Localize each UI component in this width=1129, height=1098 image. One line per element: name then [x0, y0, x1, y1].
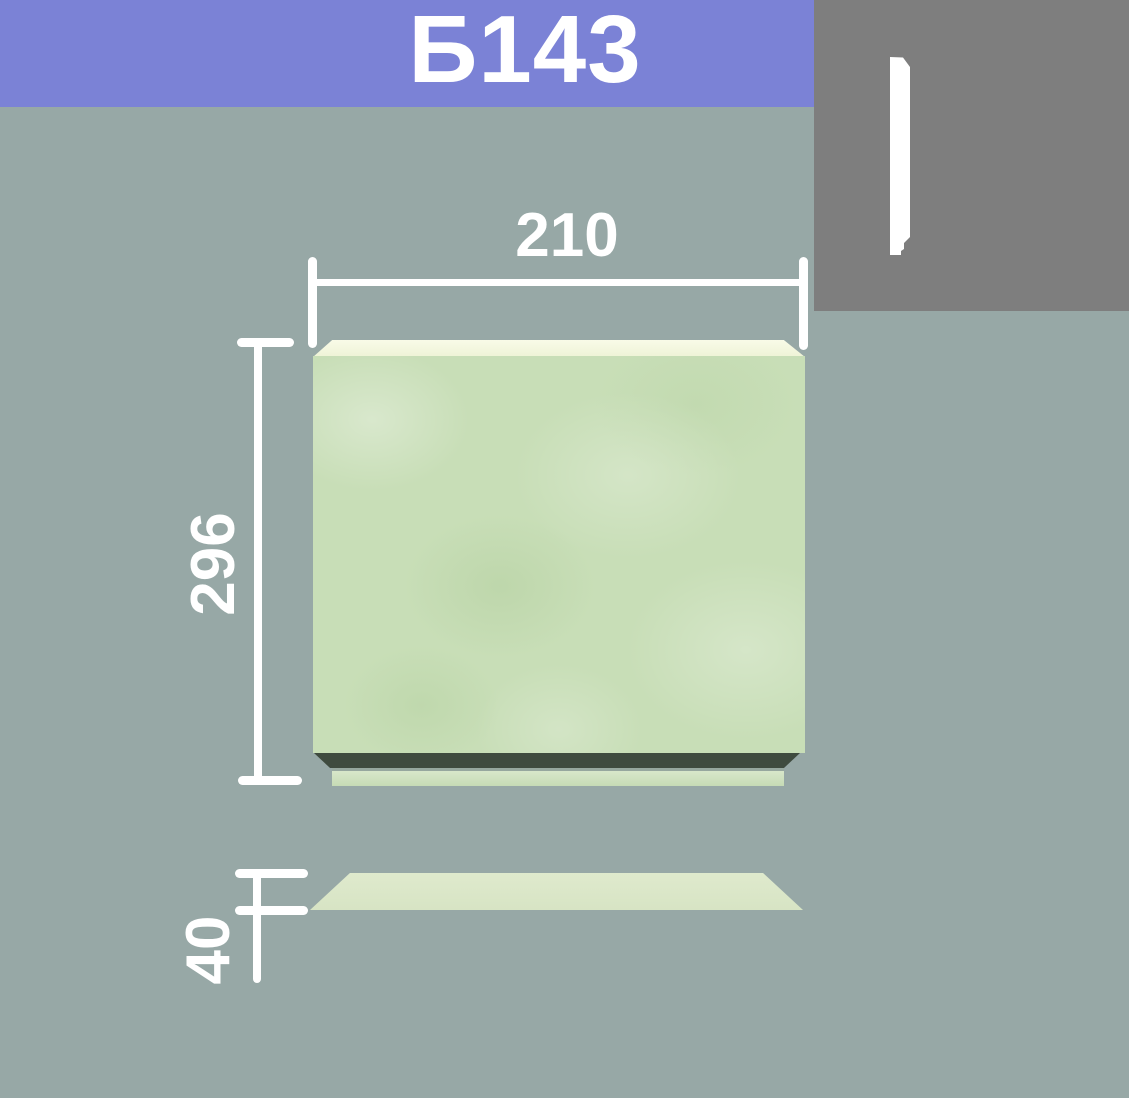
panel-top-face: [313, 340, 805, 357]
panel-front-face: [313, 356, 805, 753]
height-dimension-tick-top: [237, 338, 294, 347]
width-dimension-line: [312, 279, 804, 286]
product-drawing-page: Б143 210 296 40: [0, 0, 1129, 1098]
width-dimension-tick-left: [308, 257, 317, 348]
product-code-title: Б143: [408, 2, 641, 98]
thickness-dimension-tick-top: [235, 869, 308, 878]
profile-thumbnail-box: [814, 0, 1129, 311]
molding-profile-icon: [814, 0, 1129, 311]
thickness-dimension-line: [253, 871, 261, 983]
header-banner: Б143: [0, 0, 814, 107]
thickness-dimension-tick-bottom: [235, 906, 308, 915]
height-dimension-line: [254, 342, 262, 782]
height-dimension-label: 296: [183, 512, 245, 615]
top-view-plate: [310, 873, 803, 910]
profile-cross-section-shape: [890, 57, 910, 255]
thickness-dimension-label: 40: [178, 916, 240, 985]
panel-bottom-shadow: [314, 753, 800, 768]
width-dimension-tick-right: [799, 257, 808, 350]
height-dimension-tick-bottom: [238, 776, 302, 785]
panel-foot-strip: [332, 771, 784, 786]
width-dimension-label: 210: [515, 205, 618, 267]
